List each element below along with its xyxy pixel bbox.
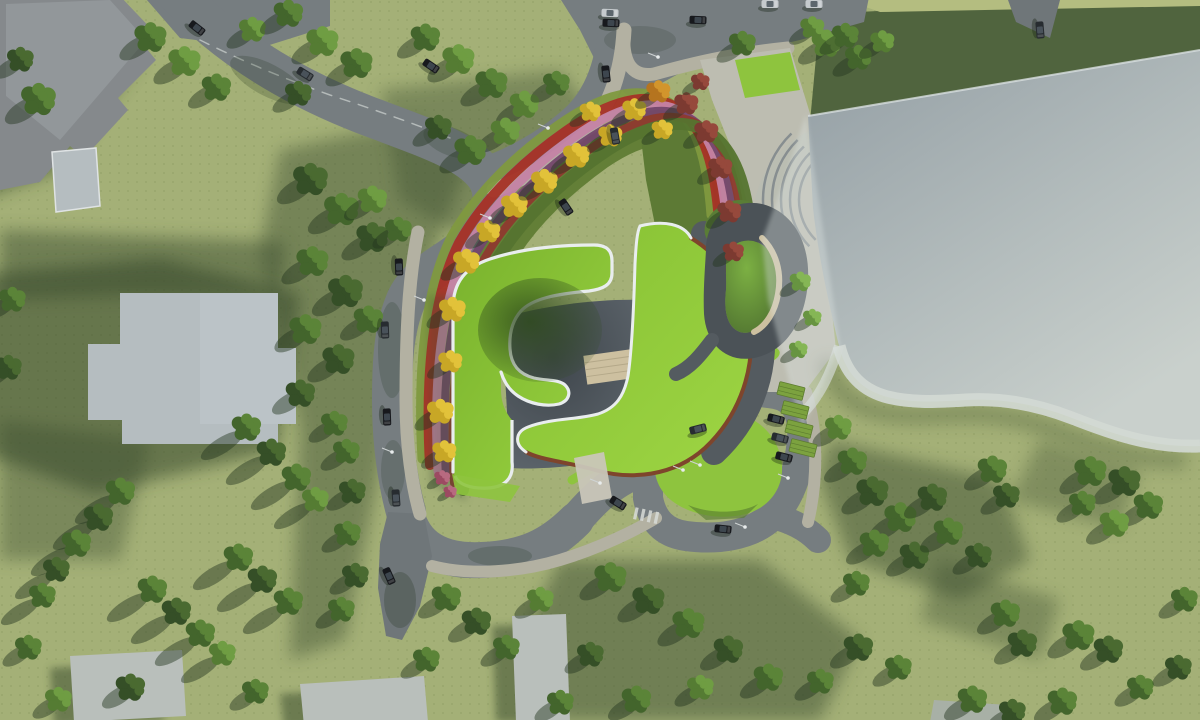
tree-canopy-lobe — [109, 492, 121, 504]
tree-canopy-highlight — [345, 283, 355, 293]
tree-canopy-lobe — [285, 478, 297, 490]
tree-canopy-lobe — [1078, 472, 1091, 485]
lawn-top-patch — [735, 52, 800, 98]
tree-canopy-lobe — [757, 678, 769, 690]
tree-canopy-lobe — [805, 318, 813, 326]
tree-canopy-lobe — [636, 600, 649, 613]
tree-canopy-highlight — [452, 303, 460, 311]
tree-canopy-lobe — [693, 82, 701, 90]
tree-canopy-lobe — [46, 570, 57, 581]
tree-canopy-lobe — [388, 230, 399, 241]
car-hood-highlight — [382, 334, 388, 337]
tree-canopy-highlight — [368, 313, 376, 321]
car-cabin — [606, 10, 613, 16]
car-cabin — [694, 17, 701, 23]
roof-center-shade — [478, 278, 602, 382]
tree-canopy-highlight — [560, 696, 568, 704]
tree-canopy-highlight — [356, 56, 365, 65]
tree-canopy-highlight — [238, 551, 246, 559]
lamp-head — [598, 481, 602, 485]
tree-canopy-highlight — [1124, 474, 1133, 483]
tree-canopy-lobe — [654, 130, 663, 139]
tree-canopy-lobe — [32, 596, 43, 607]
tree-canopy-lobe — [479, 84, 492, 97]
tree-canopy-highlight — [800, 277, 806, 283]
tree-canopy-lobe — [846, 584, 857, 595]
tree-canopy-highlight — [491, 76, 500, 85]
tree-canopy-highlight — [288, 595, 296, 603]
tree-canopy-highlight — [556, 77, 564, 85]
tree-canopy-highlight — [1184, 593, 1192, 601]
car-cabin — [1037, 26, 1044, 33]
car-hood-highlight — [393, 502, 399, 505]
car-cabin — [719, 526, 727, 533]
tree-canopy-highlight — [1062, 695, 1070, 703]
tree-canopy-highlight — [56, 563, 64, 571]
tree-canopy-lobe — [296, 180, 310, 194]
tree-canopy-lobe — [791, 350, 799, 358]
tree-canopy-lobe — [903, 556, 915, 568]
tree-canopy-lobe — [119, 688, 131, 700]
tree-canopy-highlight — [130, 681, 138, 689]
tree-canopy-highlight — [466, 255, 474, 263]
tree-canopy-lobe — [1137, 506, 1149, 518]
tree-canopy-highlight — [1090, 464, 1099, 473]
tree-canopy-lobe — [245, 692, 256, 703]
tree-canopy-highlight — [200, 627, 208, 635]
car-hood-highlight — [702, 17, 705, 23]
tree-canopy-highlight — [505, 125, 513, 133]
tree-canopy-highlight — [662, 125, 668, 131]
tree-canopy-highlight — [992, 463, 1000, 471]
tree-canopy-highlight — [347, 527, 355, 535]
tree-canopy-highlight — [298, 87, 306, 95]
tree-canopy-lobe — [138, 38, 151, 51]
tree-canopy-highlight — [636, 693, 644, 701]
tree-canopy-highlight — [733, 247, 739, 253]
tree-canopy-lobe — [496, 648, 507, 659]
tree-canopy-lobe — [968, 556, 979, 567]
tree-canopy-lobe — [810, 682, 821, 693]
car-hood-highlight — [615, 20, 618, 26]
lamp-head — [656, 55, 660, 59]
tree-canopy-highlight — [470, 143, 479, 152]
tree-canopy-highlight — [150, 30, 159, 39]
tree-canopy-highlight — [874, 537, 882, 545]
car-cabin — [607, 20, 614, 26]
tree-canopy-lobe — [860, 492, 873, 505]
tree-canopy-highlight — [76, 537, 84, 545]
tree-canopy-highlight — [700, 681, 708, 689]
car-hood-highlight — [396, 271, 402, 274]
tree-canopy-highlight — [700, 77, 705, 82]
tree-canopy-highlight — [288, 7, 296, 15]
tree-canopy-highlight — [338, 352, 347, 361]
tree-canopy-lobe — [288, 94, 299, 105]
tree-canopy-lobe — [961, 700, 973, 712]
tree-canopy-highlight — [856, 577, 864, 585]
tree-canopy-highlight — [506, 641, 514, 649]
tree-canopy-lobe — [277, 14, 289, 26]
tree-canopy-lobe — [717, 650, 729, 662]
car-hood-highlight — [1037, 34, 1043, 37]
tree-canopy-highlight — [38, 91, 48, 101]
tree-canopy-lobe — [172, 62, 185, 75]
tree-canopy-lobe — [305, 500, 316, 511]
tree-canopy-highlight — [346, 445, 354, 453]
tree-canopy-highlight — [12, 293, 20, 301]
tree-canopy-highlight — [372, 193, 380, 201]
tree-canopy-lobe — [649, 92, 659, 102]
tree-canopy-lobe — [251, 580, 263, 592]
car-cabin — [603, 70, 610, 78]
tree-canopy-highlight — [1078, 628, 1087, 637]
tree-canopy-highlight — [742, 37, 750, 45]
tree-canopy-highlight — [442, 474, 447, 479]
tree-canopy-lobe — [504, 206, 515, 217]
tree-canopy-lobe — [566, 156, 577, 167]
tree-canopy-highlight — [352, 485, 360, 493]
tree-canopy-highlight — [305, 322, 314, 331]
tree-canopy-highlight — [42, 589, 50, 597]
lamp-head — [681, 468, 685, 472]
tree-canopy-highlight — [120, 485, 128, 493]
tree-canopy-lobe — [65, 544, 77, 556]
tree-canopy-lobe — [327, 210, 341, 224]
tree-canopy-lobe — [1130, 688, 1141, 699]
tree-canopy-lobe — [732, 44, 743, 55]
tree-canopy-lobe — [18, 648, 29, 659]
tree-canopy-highlight — [1082, 497, 1090, 505]
tree-canopy-lobe — [1103, 524, 1115, 536]
tree-canopy-lobe — [87, 518, 99, 530]
tree-canopy-lobe — [803, 28, 813, 38]
tree-canopy-lobe — [342, 492, 353, 503]
tree-canopy-highlight — [1114, 517, 1122, 525]
tree-canopy-lobe — [293, 330, 306, 343]
tree-canopy-highlight — [262, 573, 270, 581]
car-hood-highlight — [819, 1, 822, 7]
tree-canopy-lobe — [324, 424, 335, 435]
tree-canopy-lobe — [1072, 504, 1083, 515]
topleft-annex-roof — [52, 148, 100, 212]
tree-canopy-highlight — [216, 81, 224, 89]
tree-canopy-highlight — [20, 53, 28, 61]
car-cabin — [384, 413, 390, 420]
tree-canopy-lobe — [848, 58, 859, 69]
lamp-head — [546, 126, 550, 130]
tree-canopy-highlight — [28, 641, 36, 649]
tree-canopy-lobe — [888, 668, 899, 679]
tree-canopy-highlight — [334, 417, 342, 425]
car-cabin — [396, 263, 402, 270]
tree-canopy-lobe — [277, 602, 289, 614]
tree-canopy-highlight — [300, 387, 308, 395]
tree-canopy-lobe — [534, 182, 545, 193]
tree-canopy-highlight — [610, 570, 619, 579]
tree-canopy-lobe — [921, 498, 933, 510]
tree-canopy-lobe — [436, 478, 442, 484]
tree-canopy-highlight — [590, 107, 596, 113]
tree-canopy-highlight — [972, 693, 980, 701]
tree-canopy-lobe — [1174, 600, 1185, 611]
tree-canopy-highlight — [540, 593, 548, 601]
tree-canopy-highlight — [184, 54, 193, 63]
tree-canopy-lobe — [835, 36, 846, 47]
tree-canopy-lobe — [580, 655, 591, 666]
tree-canopy-lobe — [981, 470, 993, 482]
site-plan-rendering — [0, 0, 1200, 720]
tree-canopy-lobe — [310, 42, 323, 55]
tree-canopy-lobe — [344, 64, 357, 77]
tree-canopy-lobe — [711, 168, 721, 178]
tree-canopy-lobe — [888, 518, 901, 531]
tree-canopy-lobe — [530, 600, 541, 611]
tree-canopy-highlight — [450, 356, 457, 363]
tree-canopy-highlight — [688, 616, 697, 625]
tree-canopy-lobe — [345, 576, 356, 587]
tree-canopy-lobe — [441, 362, 451, 372]
tree-canopy-highlight — [728, 643, 736, 651]
tree-canopy-highlight — [590, 648, 598, 656]
lamp-head — [488, 216, 492, 220]
tree-canopy-lobe — [435, 598, 447, 610]
tree-canopy-highlight — [1006, 489, 1014, 497]
tree-canopy-highlight — [720, 162, 727, 169]
tree-canopy-highlight — [812, 22, 819, 29]
tree-canopy-highlight — [845, 29, 853, 37]
tree-canopy-lobe — [465, 622, 477, 634]
tree-canopy-lobe — [1112, 482, 1125, 495]
lamp-head — [422, 298, 426, 302]
car-hood-highlight — [775, 1, 778, 7]
tree-canopy-lobe — [550, 703, 561, 714]
car-hood-highlight — [384, 421, 390, 424]
tree-canopy-lobe — [300, 262, 313, 275]
tree-canopy-lobe — [479, 232, 489, 242]
tree-canopy-lobe — [847, 648, 859, 660]
tree-canopy-highlight — [444, 446, 451, 453]
tree-canopy-lobe — [326, 360, 339, 373]
tree-canopy-highlight — [426, 653, 434, 661]
tree-canopy-highlight — [58, 693, 66, 701]
tree-canopy-highlight — [176, 605, 184, 613]
car-hood-highlight — [614, 10, 617, 16]
tree-canopy-lobe — [841, 462, 853, 474]
tree-canopy-highlight — [706, 126, 713, 133]
tree-canopy-lobe — [337, 534, 348, 545]
tree-canopy-highlight — [315, 493, 323, 501]
tree-canopy-highlight — [768, 671, 776, 679]
tree-canopy-highlight — [1140, 681, 1148, 689]
tree-canopy-lobe — [1097, 650, 1109, 662]
tree-canopy-highlight — [576, 149, 584, 157]
tree-canopy-lobe — [48, 700, 59, 711]
tree-canopy-lobe — [598, 578, 611, 591]
tree-canopy-lobe — [863, 544, 875, 556]
tree-canopy-lobe — [792, 282, 801, 291]
tree-canopy-lobe — [676, 624, 689, 637]
aerial-render-canvas — [0, 0, 1200, 720]
car-cabin — [811, 1, 818, 7]
tree-canopy-lobe — [546, 84, 557, 95]
tree-canopy-lobe — [1051, 702, 1063, 714]
tree-canopy-highlight — [8, 361, 16, 369]
tree-canopy-lobe — [873, 42, 883, 52]
tree-canopy-lobe — [690, 688, 701, 699]
tree-canopy-highlight — [322, 34, 331, 43]
tree-canopy-lobe — [442, 310, 453, 321]
tree-canopy-lobe — [996, 496, 1007, 507]
tree-canopy-lobe — [430, 412, 441, 423]
car-cabin — [611, 132, 618, 140]
tree-canopy-highlight — [438, 121, 446, 129]
tree-canopy-highlight — [872, 484, 881, 493]
tree-canopy-highlight — [544, 175, 552, 183]
tree-canopy-lobe — [428, 128, 439, 139]
tree-canopy-lobe — [331, 610, 342, 621]
tree-canopy-lobe — [445, 492, 450, 497]
tree-canopy-highlight — [152, 583, 160, 591]
tree-canopy-highlight — [1148, 499, 1156, 507]
tree-canopy-lobe — [260, 453, 272, 465]
tree-canopy-lobe — [677, 104, 687, 114]
tree-canopy-lobe — [165, 612, 177, 624]
tree-canopy-highlight — [729, 206, 736, 213]
tree-canopy-highlight — [898, 661, 906, 669]
tree-canopy-lobe — [1168, 668, 1179, 679]
tree-canopy-highlight — [820, 675, 828, 683]
tree-canopy-lobe — [212, 654, 223, 665]
tree-canopy-highlight — [222, 647, 230, 655]
tree-canopy-lobe — [625, 110, 635, 120]
tree-canopy-highlight — [648, 592, 657, 601]
tree-canopy-lobe — [361, 200, 373, 212]
tree-canopy-highlight — [948, 525, 956, 533]
tree-canopy-highlight — [658, 86, 665, 93]
tree-canopy-highlight — [798, 345, 803, 350]
tree-canopy-highlight — [255, 685, 263, 693]
car-cabin — [767, 1, 774, 7]
tree-canopy-highlight — [1022, 637, 1030, 645]
tree-canopy-highlight — [488, 226, 495, 233]
tree-canopy-highlight — [838, 421, 846, 429]
lamp-head — [698, 463, 702, 467]
car-cabin — [393, 494, 399, 501]
tree-canopy-lobe — [357, 320, 369, 332]
tree-canopy-lobe — [494, 132, 506, 144]
tree-canopy-lobe — [725, 252, 734, 261]
tree-canopy-lobe — [720, 212, 730, 222]
tree-canopy-highlight — [398, 223, 406, 231]
tree-canopy-highlight — [355, 569, 363, 577]
tree-canopy-lobe — [828, 428, 839, 439]
car-cabin — [382, 326, 388, 333]
tree-canopy-highlight — [458, 52, 467, 61]
tree-canopy-highlight — [440, 405, 448, 413]
tree-canopy-highlight — [425, 31, 433, 39]
tree-canopy-lobe — [360, 238, 373, 251]
tree-canopy-highlight — [1178, 661, 1186, 669]
tree-canopy-highlight — [686, 98, 693, 105]
tree-canopy-lobe — [189, 634, 201, 646]
tree-canopy-highlight — [514, 199, 522, 207]
tree-canopy-lobe — [24, 100, 38, 114]
tree-canopy-highlight — [882, 36, 889, 43]
tree-canopy-lobe — [235, 428, 247, 440]
tree-canopy-lobe — [435, 452, 445, 462]
tree-canopy-lobe — [331, 292, 345, 306]
tree-canopy-lobe — [625, 700, 637, 712]
tree-canopy-lobe — [289, 394, 301, 406]
tree-canopy-highlight — [271, 446, 279, 454]
tree-canopy-lobe — [2, 300, 13, 311]
tree-canopy-highlight — [932, 491, 940, 499]
lamp-head — [743, 525, 747, 529]
tree-canopy-lobe — [242, 30, 253, 41]
tree-canopy-highlight — [858, 641, 866, 649]
tree-canopy-highlight — [310, 171, 320, 181]
tree-canopy-highlight — [812, 313, 817, 318]
tree-canopy-highlight — [296, 471, 304, 479]
tree-canopy-lobe — [205, 88, 217, 100]
tree-canopy-highlight — [446, 591, 454, 599]
tree-canopy-highlight — [246, 421, 254, 429]
tree-canopy-highlight — [312, 254, 321, 263]
tree-canopy-highlight — [1108, 643, 1116, 651]
tree-canopy-lobe — [458, 151, 471, 164]
tree-canopy-lobe — [416, 660, 427, 671]
tree-canopy-highlight — [1005, 607, 1013, 615]
lamp-head — [390, 450, 394, 454]
tree-canopy-highlight — [341, 603, 349, 611]
tree-canopy-highlight — [98, 511, 106, 519]
tree-canopy-lobe — [10, 60, 21, 71]
tree-canopy-lobe — [1011, 644, 1023, 656]
tree-canopy-lobe — [994, 614, 1006, 626]
tree-canopy-lobe — [1066, 636, 1079, 649]
tree-canopy-lobe — [414, 38, 426, 50]
tree-canopy-highlight — [252, 23, 260, 31]
tree-canopy-lobe — [513, 105, 525, 117]
tree-canopy-highlight — [978, 549, 986, 557]
lamp-head — [786, 476, 790, 480]
tree-canopy-highlight — [450, 489, 454, 493]
tree-canopy-lobe — [697, 132, 707, 142]
tree-canopy-lobe — [446, 60, 459, 73]
tree-canopy-lobe — [227, 558, 239, 570]
tree-canopy-lobe — [141, 590, 153, 602]
tree-canopy-highlight — [852, 455, 860, 463]
tree-canopy-lobe — [937, 532, 949, 544]
tree-canopy-highlight — [476, 615, 484, 623]
tree-canopy-lobe — [456, 262, 467, 273]
tree-canopy-highlight — [1012, 705, 1020, 713]
tree-canopy-lobe — [336, 452, 347, 463]
tree-canopy-lobe — [582, 112, 591, 121]
